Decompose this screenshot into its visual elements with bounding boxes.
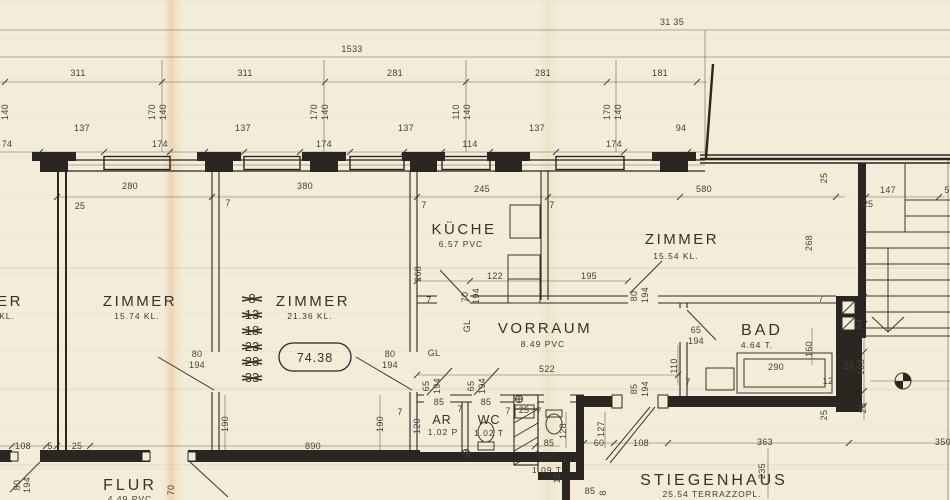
dimension-label: 280 [122,181,138,191]
dimension-label: 311 [237,68,252,78]
dimension-label: 65 [691,325,702,335]
room-area-ar: 1.02 P [428,427,459,437]
dimension-label: 137 [398,123,414,133]
dimension-label: 5 [47,441,52,451]
struck-revision-numbers: 81318232833 [242,291,262,385]
dimension-label: 195 [581,271,597,281]
dimension-label: 194 [688,336,704,346]
room-area-kueche: 6.57 PVC [439,239,483,249]
dimension-label: 147 [880,185,896,195]
dimension-label: 281 [535,68,551,78]
dimension-label: 110 [451,104,461,119]
room-label-ar: AR [432,413,451,427]
bathtub-inner [744,359,825,387]
dimension-label: 85 [629,384,639,395]
dimension-label: 108 [633,438,649,448]
kitchen-stove [508,279,540,303]
dimension-label: 94 [676,123,687,133]
room-label-vorraum: VORRAUM [498,320,592,337]
dimension-label: 350 [935,437,950,447]
room-label-kueche: KÜCHE [431,220,496,238]
dimension-label: 174 [606,139,622,149]
window-boxes [104,157,624,170]
dimension-label: 7 [549,200,554,210]
dimension-label: 380 [297,181,313,191]
dimension-label: 268 [804,235,814,251]
dimension-label: 70 [460,292,470,303]
dimension-label: 122 [487,271,503,281]
dimension-label: 363 [757,437,773,447]
room-area-zimmer-right: 15.54 KL. [653,251,698,261]
dimension-label: 137 [74,123,90,133]
dimension-label: 74 [2,139,13,149]
dimension-label: 7 [457,404,462,414]
kitchen-sink [508,255,540,279]
dimension-label: 103 [856,359,866,375]
dimension-label: 7 [818,294,823,304]
dimension-label: 25 [858,403,868,414]
dimension-label: 137 [235,123,251,133]
staircase [866,163,950,336]
kitchen-counter [510,205,540,238]
dimension-label: 140 [0,104,10,120]
drain-symbol [516,396,523,403]
dimension-label: 194 [22,477,32,493]
dimension-label: 25 [819,173,829,184]
dimension-label: 194 [477,378,487,394]
dimension-label: GL [462,320,472,333]
room-area-wc1: 1.02 T [474,428,504,438]
room-area-zimmer-center: 21.36 KL. [287,311,332,321]
dimension-label: 60 [594,438,605,448]
dimension-label: 7 [397,407,402,417]
floor-plan-drawing: ZIMMER 15.74 KL. ZIMMER 21.36 KL. KÜCHE … [0,0,950,500]
dimension-label: 7 [536,406,541,416]
dimension-label: 281 [387,68,403,78]
dimension-label: 108 [15,441,31,451]
dimension-label: 64 [854,319,864,330]
dimension-label: 12 [552,473,562,484]
dimension-label: 194 [640,287,650,303]
floor-plan-sheet: ZIMMER 15.74 KL. ZIMMER 21.36 KL. KÜCHE … [0,0,950,500]
dimension-label: 170 [309,104,319,120]
dimension-label: 190 [220,416,230,432]
dimension-label: 8 [598,490,608,495]
dimension-labels: 31 3515333113112812811811401701401701401… [0,17,950,496]
dimension-label: 580 [696,184,712,194]
dimension-label: 65 [421,381,431,392]
dimension-label: 31 35 [660,17,684,27]
dimension-label: 170 [602,104,612,120]
dimension-label: 85 [434,397,445,407]
room-area-vorraum: 8.49 PVC [521,339,565,349]
room-area-bad: 4.64 T. [741,340,773,350]
dimension-label: 120 [412,418,422,434]
dimension-label: 7 [685,377,690,387]
room-label-neighbor-cut: ER [0,293,23,310]
room-label-wc2: WC [538,451,561,465]
drain-symbol [463,450,470,457]
dimension-label: 80 [629,291,639,302]
dimension-label: 7 [505,406,510,416]
dimension-label: 25 [863,199,874,209]
dimension-label: 194 [189,360,205,370]
room-area-zimmer-left: 15.74 KL. [114,311,159,321]
dimension-label: 26 [844,361,855,371]
dimension-label: 85 [481,397,492,407]
dimension-label: 174 [152,139,168,149]
dimension-label: GL [428,348,441,358]
room-area-stiegenhaus: 25.54 TERRAZZOPL. [662,489,761,499]
dimension-label: 522 [539,364,555,374]
dimension-label: 70 [166,485,176,496]
dimension-label: 85 [544,438,555,448]
dimension-label: 890 [305,441,321,451]
dimension-label: 85 [585,486,596,496]
dimension-label: 128 [558,423,568,439]
dimension-label: 12 [823,376,834,386]
stair-direction-arrow [872,248,904,332]
room-label-zimmer-right: ZIMMER [645,231,719,248]
dimension-label: 194 [432,378,442,394]
dimension-label: 160 [804,341,814,357]
dimension-label: 194 [382,360,398,370]
dimension-label: 25 [75,201,86,211]
dimension-label: 290 [768,362,784,372]
dimension-label: 80 [385,349,396,359]
washbasin [706,368,734,390]
dimension-label: 194 [640,381,650,397]
room-label-zimmer-center: ZIMMER [276,293,350,310]
dimension-label: 25 [819,410,829,421]
dimension-label: 114 [462,139,477,149]
room-label-zimmer-left: ZIMMER [103,293,177,310]
dimension-label: 245 [474,184,490,194]
dimension-label: 7 [421,200,426,210]
dimension-label: 140 [613,104,623,120]
dimension-label: 7 [426,295,431,305]
dimension-label: 110 [669,358,679,373]
dimension-label: 268 [413,266,423,282]
dimension-label: 25 [519,405,530,415]
dimension-label: 174 [316,139,332,149]
room-area-flur: 4.49 PVC [108,494,152,500]
dimension-label: 190 [375,416,385,432]
dimension-label: 5 [944,185,949,195]
dimension-label: 194 [471,288,481,304]
survey-point-symbol [895,373,911,389]
total-area-value: 74.38 [297,351,333,365]
dimension-label: 127 [596,421,606,437]
dimension-label: 80 [192,349,203,359]
dimension-label: 170 [147,104,157,120]
dimension-label: 311 [70,68,85,78]
dimension-label: 140 [320,104,330,120]
room-label-wc1: WC [478,413,501,427]
dimension-label: 25 [72,441,83,451]
room-label-flur: FLUR [103,477,157,494]
dimension-label: 80 [12,480,22,491]
room-area-neighbor-cut: KL. [0,311,15,321]
dimension-label: 181 [652,68,668,78]
dimension-label: 235 [757,463,767,479]
dimension-label: 1533 [341,44,362,54]
dimension-label: 140 [462,104,472,120]
room-label-bad: BAD [741,322,783,339]
dimension-label: 65 [466,381,476,392]
dimension-label: 140 [158,104,168,120]
dimension-label: 137 [529,123,545,133]
dimension-label: 7 [225,198,230,208]
